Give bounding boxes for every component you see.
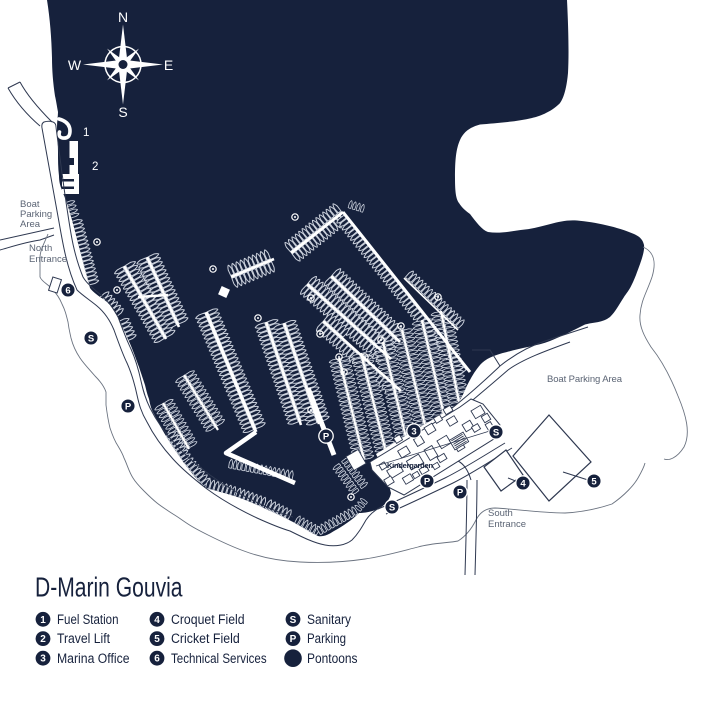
svg-text:Sanitary: Sanitary [307, 612, 351, 627]
svg-text:Marina Office: Marina Office [57, 651, 130, 666]
svg-text:3: 3 [411, 426, 416, 437]
svg-text:P: P [125, 401, 132, 412]
svg-text:Area: Area [20, 219, 41, 230]
svg-text:S: S [88, 333, 94, 344]
svg-text:P: P [424, 476, 431, 487]
svg-text:6: 6 [154, 654, 160, 665]
svg-text:Parking: Parking [307, 631, 346, 646]
svg-text:P: P [323, 431, 330, 442]
svg-text:South: South [488, 508, 513, 519]
svg-text:Entrance: Entrance [488, 519, 526, 530]
svg-text:Boat Parking Area: Boat Parking Area [547, 374, 623, 385]
svg-text:5: 5 [154, 634, 160, 645]
svg-text:S: S [118, 104, 127, 120]
svg-text:Pontoons: Pontoons [307, 651, 358, 666]
svg-text:3: 3 [40, 654, 46, 665]
svg-text:Travel Lift: Travel Lift [57, 631, 110, 646]
svg-text:Entrance: Entrance [29, 254, 67, 265]
svg-text:S: S [389, 502, 395, 513]
svg-text:D-Marin Gouvia: D-Marin Gouvia [35, 572, 183, 603]
svg-text:1: 1 [83, 127, 89, 139]
svg-text:S: S [290, 615, 297, 626]
svg-text:2: 2 [92, 161, 98, 173]
svg-text:Kindergarden: Kindergarden [387, 461, 433, 470]
svg-text:2: 2 [40, 634, 46, 645]
svg-text:4: 4 [154, 615, 160, 626]
svg-text:5: 5 [591, 476, 597, 487]
svg-text:Fuel Station: Fuel Station [57, 612, 119, 627]
svg-text:P: P [290, 634, 297, 645]
svg-text:E: E [164, 57, 173, 73]
svg-text:S: S [493, 427, 499, 438]
svg-text:P: P [457, 487, 464, 498]
svg-text:1: 1 [40, 615, 46, 626]
svg-text:6: 6 [65, 285, 70, 296]
svg-text:North: North [29, 243, 52, 254]
svg-text:W: W [68, 57, 82, 73]
svg-text:N: N [118, 9, 128, 25]
svg-text:Technical Services: Technical Services [171, 651, 267, 666]
svg-text:Cricket Field: Cricket Field [171, 631, 240, 646]
svg-text:Croquet Field: Croquet Field [171, 612, 245, 627]
svg-text:4: 4 [520, 478, 526, 489]
